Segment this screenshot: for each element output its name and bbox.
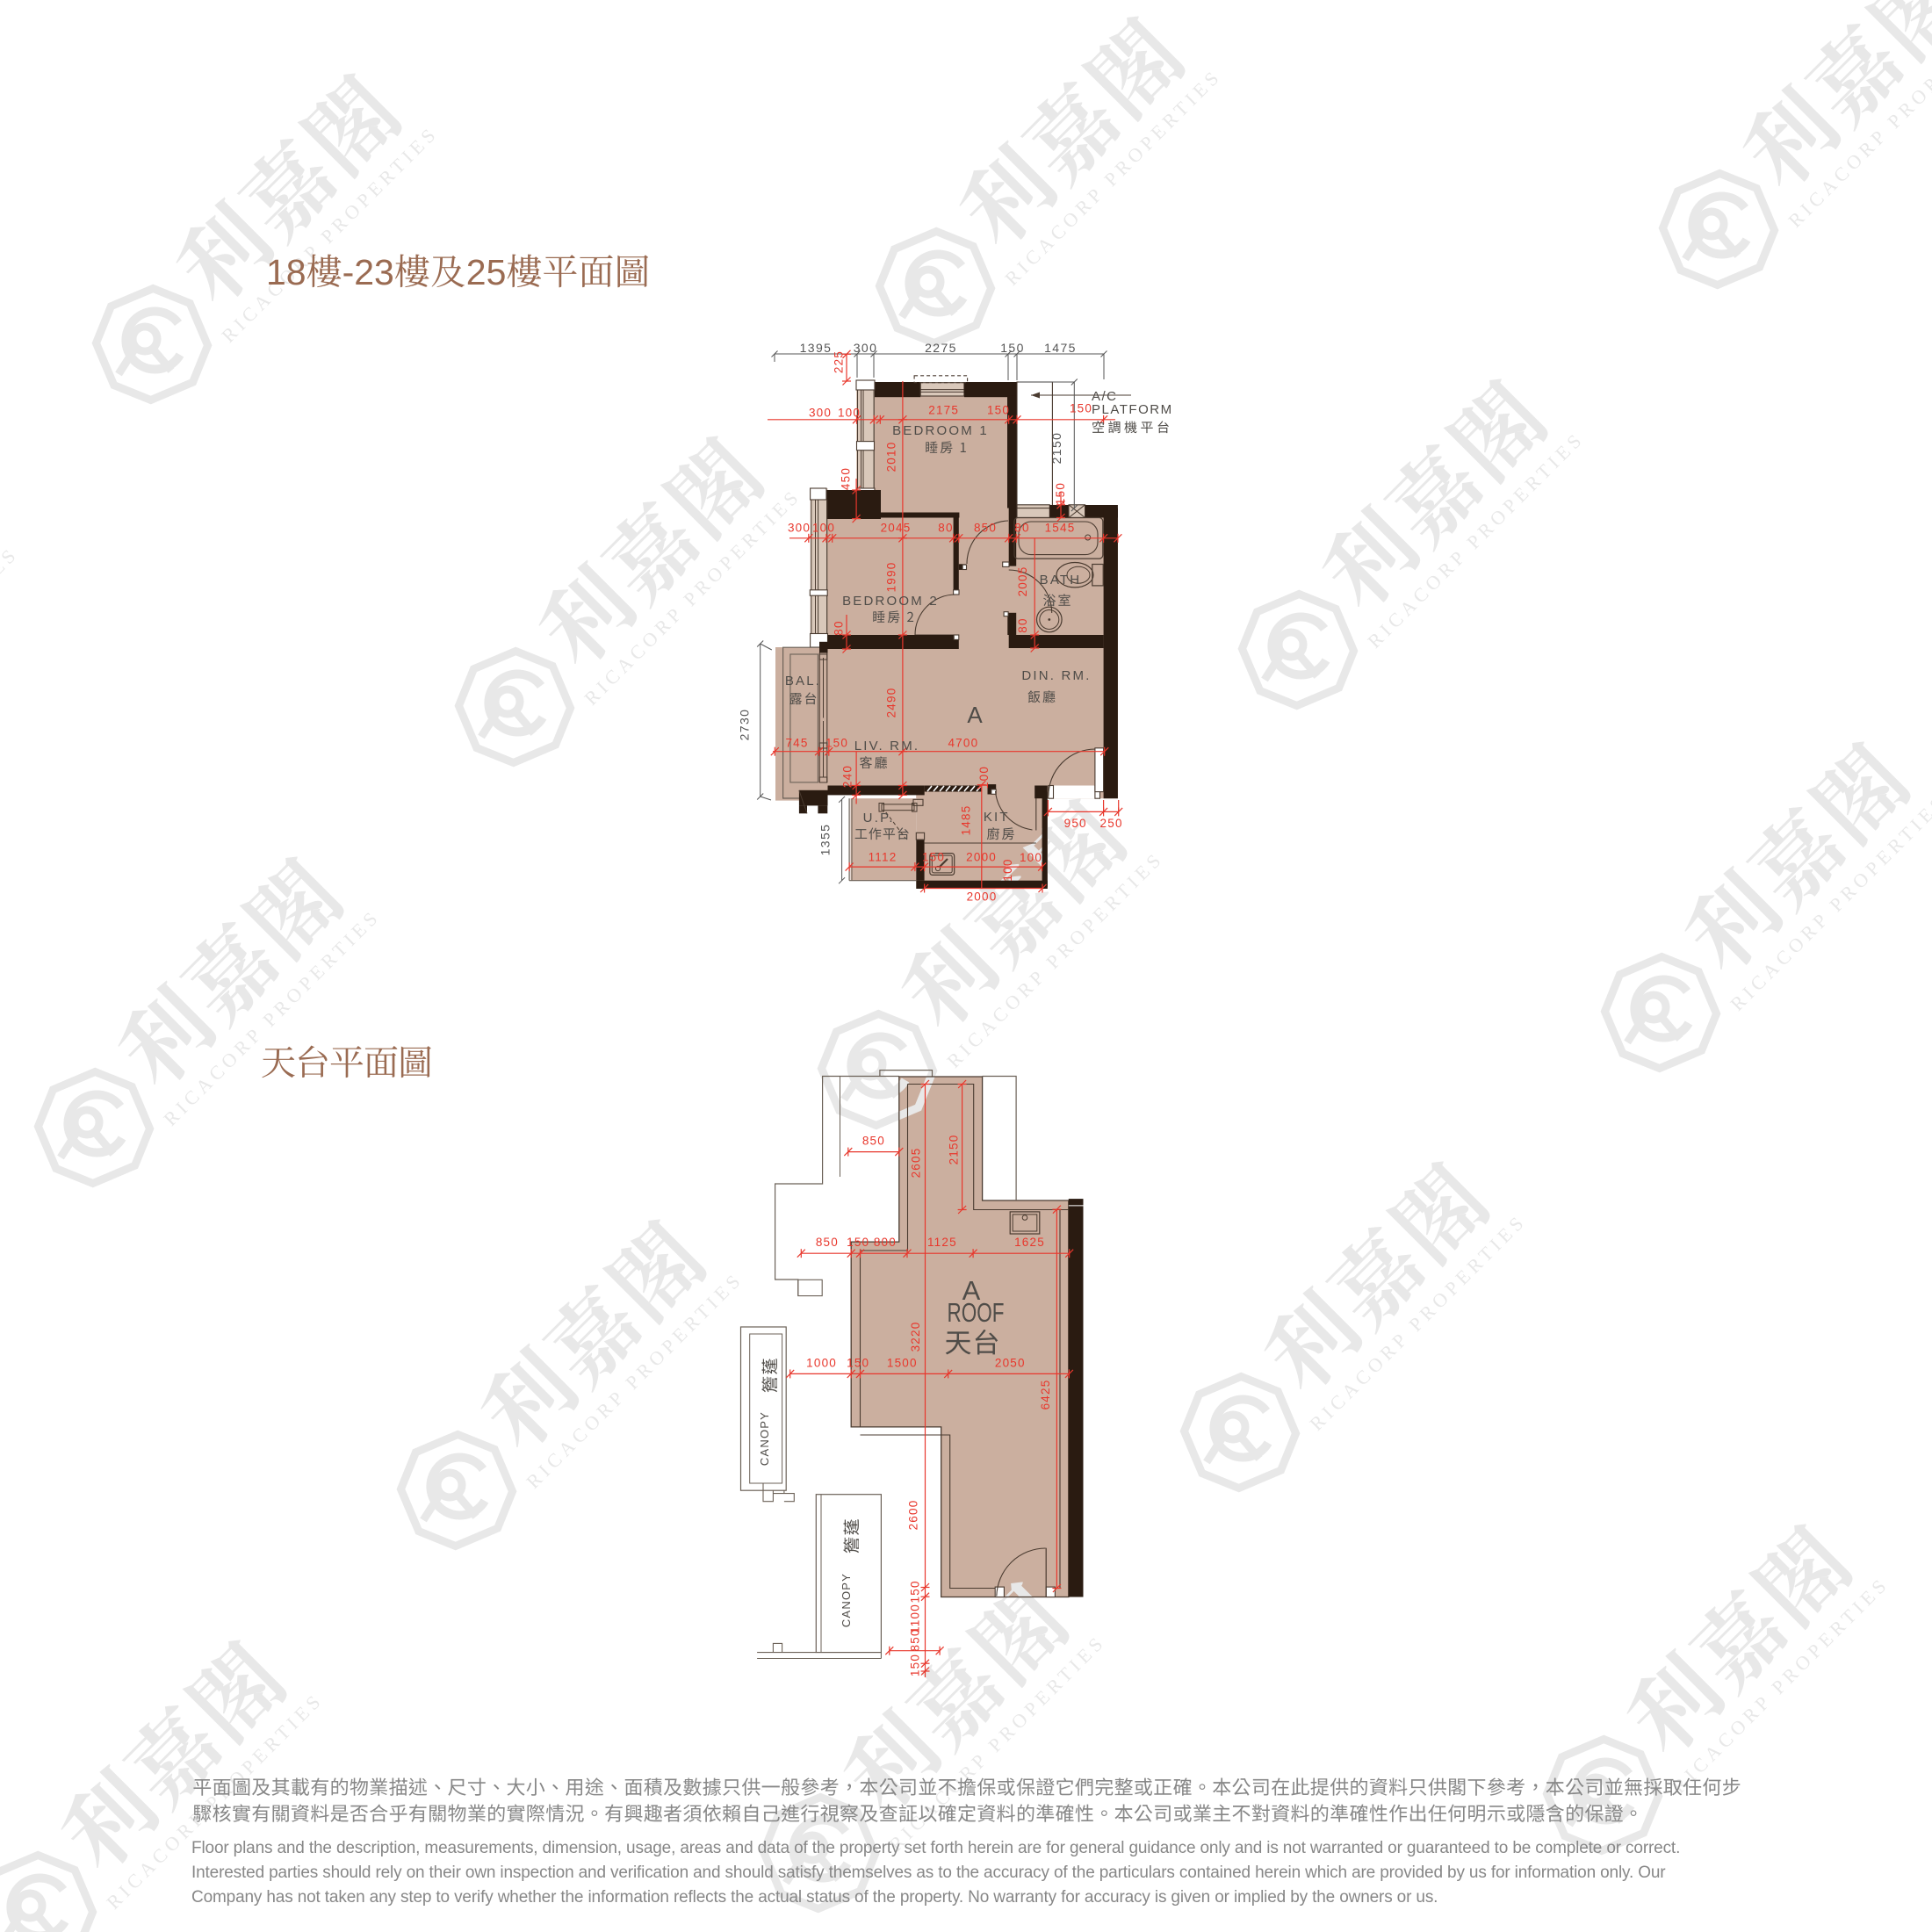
svg-text:1395: 1395 xyxy=(800,341,833,355)
svg-text:150: 150 xyxy=(825,737,848,750)
svg-text:1355: 1355 xyxy=(818,824,833,856)
svg-text:DIN. RM.: DIN. RM. xyxy=(1021,668,1091,683)
svg-text:100: 100 xyxy=(812,522,835,535)
svg-text:800: 800 xyxy=(874,1236,897,1249)
svg-text:2010: 2010 xyxy=(884,442,898,472)
svg-text:KIT: KIT xyxy=(984,810,1010,825)
svg-text:300: 300 xyxy=(809,407,832,420)
svg-text:2600: 2600 xyxy=(907,1500,920,1531)
svg-text:80: 80 xyxy=(1016,617,1029,632)
svg-text:80: 80 xyxy=(1014,522,1029,535)
svg-text:1125: 1125 xyxy=(927,1236,957,1249)
svg-text:A: A xyxy=(967,702,983,728)
svg-text:BEDROOM 1: BEDROOM 1 xyxy=(892,423,989,438)
svg-text:Interested parties should rely: Interested parties should rely on their … xyxy=(191,1864,1666,1882)
svg-text:2275: 2275 xyxy=(925,341,957,355)
svg-text:1545: 1545 xyxy=(1045,522,1076,535)
svg-text:1990: 1990 xyxy=(884,562,898,593)
svg-text:850: 850 xyxy=(974,522,997,535)
svg-text:BATH: BATH xyxy=(1040,573,1082,588)
svg-text:150: 150 xyxy=(1054,482,1067,505)
svg-text:100: 100 xyxy=(1020,851,1042,864)
svg-text:2150: 2150 xyxy=(948,1135,961,1165)
svg-text:25: 25 xyxy=(466,252,507,292)
svg-text:1485: 1485 xyxy=(960,805,973,836)
svg-text:1625: 1625 xyxy=(1014,1236,1045,1249)
svg-text:1475: 1475 xyxy=(1044,341,1077,355)
svg-text:850: 850 xyxy=(908,1628,921,1651)
svg-text:450: 450 xyxy=(840,467,853,490)
svg-text:300: 300 xyxy=(788,522,811,535)
svg-text:225: 225 xyxy=(833,350,846,373)
svg-text:300: 300 xyxy=(854,341,878,355)
svg-text:850: 850 xyxy=(816,1236,839,1249)
svg-text:18: 18 xyxy=(266,252,306,292)
svg-text:150: 150 xyxy=(1000,341,1025,355)
svg-text:BEDROOM 2: BEDROOM 2 xyxy=(842,594,939,609)
svg-text:100: 100 xyxy=(1001,858,1014,881)
svg-text:2490: 2490 xyxy=(884,688,898,718)
svg-text:Company has not taken any step: Company has not taken any step to verify… xyxy=(191,1888,1438,1907)
svg-text:850: 850 xyxy=(862,1135,885,1148)
svg-text:80: 80 xyxy=(938,522,953,535)
svg-text:PLATFORM: PLATFORM xyxy=(1092,402,1173,417)
svg-text:BAL.: BAL. xyxy=(785,674,821,688)
svg-text:100: 100 xyxy=(838,407,861,420)
svg-text:CANOPY: CANOPY xyxy=(758,1411,771,1466)
svg-text:1500: 1500 xyxy=(887,1357,918,1370)
svg-text:2050: 2050 xyxy=(995,1357,1026,1370)
svg-text:2150: 2150 xyxy=(1049,432,1063,465)
svg-text:150: 150 xyxy=(908,1580,921,1603)
svg-text:2000: 2000 xyxy=(967,890,998,903)
svg-text:150: 150 xyxy=(847,1236,869,1249)
svg-text:Floor plans and the descriptio: Floor plans and the description, measure… xyxy=(191,1839,1680,1857)
svg-text:1000: 1000 xyxy=(806,1357,837,1370)
svg-text:250: 250 xyxy=(1100,817,1123,830)
svg-text:950: 950 xyxy=(1064,817,1087,830)
svg-text:745: 745 xyxy=(785,737,808,750)
svg-text:2005: 2005 xyxy=(1016,566,1029,597)
svg-text:2605: 2605 xyxy=(909,1148,922,1179)
svg-text:CANOPY: CANOPY xyxy=(840,1573,853,1627)
svg-text:240: 240 xyxy=(841,765,854,788)
svg-text:ROOF: ROOF xyxy=(948,1297,1005,1328)
svg-text:150: 150 xyxy=(1070,402,1092,415)
svg-text:150: 150 xyxy=(922,851,945,864)
svg-text:U.P.: U.P. xyxy=(863,811,895,825)
svg-text:2730: 2730 xyxy=(738,709,752,741)
svg-text:1112: 1112 xyxy=(869,851,898,864)
svg-text:150: 150 xyxy=(987,404,1010,417)
svg-text:6425: 6425 xyxy=(1039,1380,1052,1410)
svg-text:150: 150 xyxy=(847,1357,869,1370)
svg-text:150: 150 xyxy=(908,1654,921,1676)
svg-text:-23: -23 xyxy=(342,252,394,292)
svg-text:4700: 4700 xyxy=(948,737,978,750)
svg-text:2045: 2045 xyxy=(881,522,912,535)
svg-text:3220: 3220 xyxy=(909,1322,922,1352)
svg-text:80: 80 xyxy=(833,620,846,635)
svg-text:LIV. RM.: LIV. RM. xyxy=(854,739,920,753)
svg-text:2175: 2175 xyxy=(928,404,959,417)
